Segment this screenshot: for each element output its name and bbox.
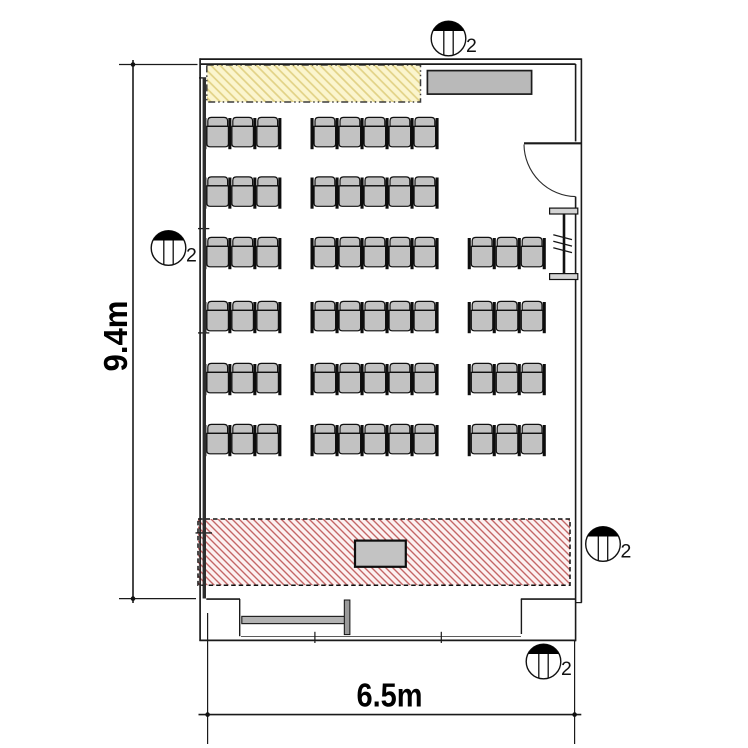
- svg-text:2: 2: [561, 658, 572, 680]
- svg-text:2: 2: [186, 245, 197, 267]
- svg-text:2: 2: [466, 35, 477, 57]
- svg-text:6.5m: 6.5m: [357, 677, 423, 714]
- svg-text:2: 2: [621, 541, 632, 563]
- svg-text:9.4m: 9.4m: [97, 301, 134, 372]
